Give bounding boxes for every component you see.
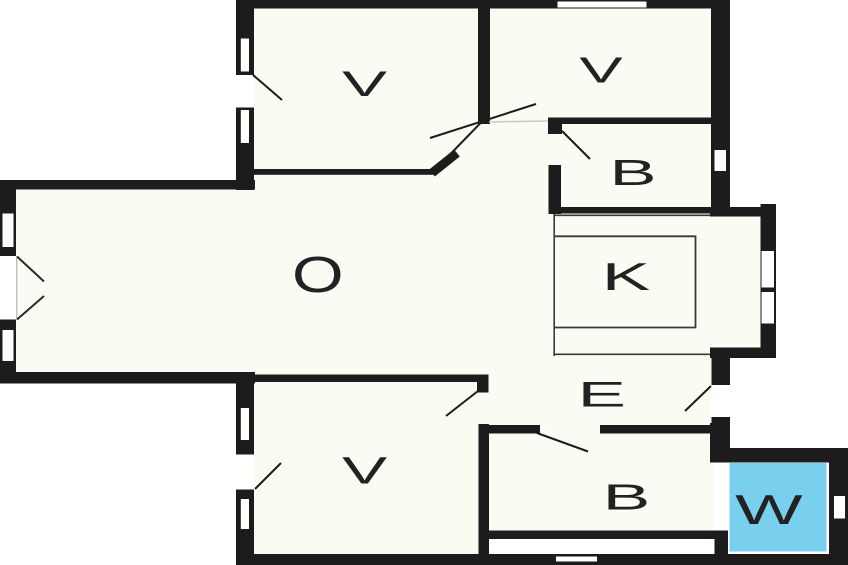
svg-text:B: B: [603, 476, 651, 517]
svg-text:B: B: [610, 152, 657, 193]
svg-text:V: V: [342, 65, 388, 104]
svg-text:K: K: [602, 256, 651, 299]
svg-text:V: V: [342, 451, 388, 493]
svg-text:E: E: [578, 376, 627, 415]
svg-text:O: O: [292, 246, 344, 303]
svg-text:V: V: [579, 49, 623, 90]
svg-text:W: W: [735, 486, 803, 533]
